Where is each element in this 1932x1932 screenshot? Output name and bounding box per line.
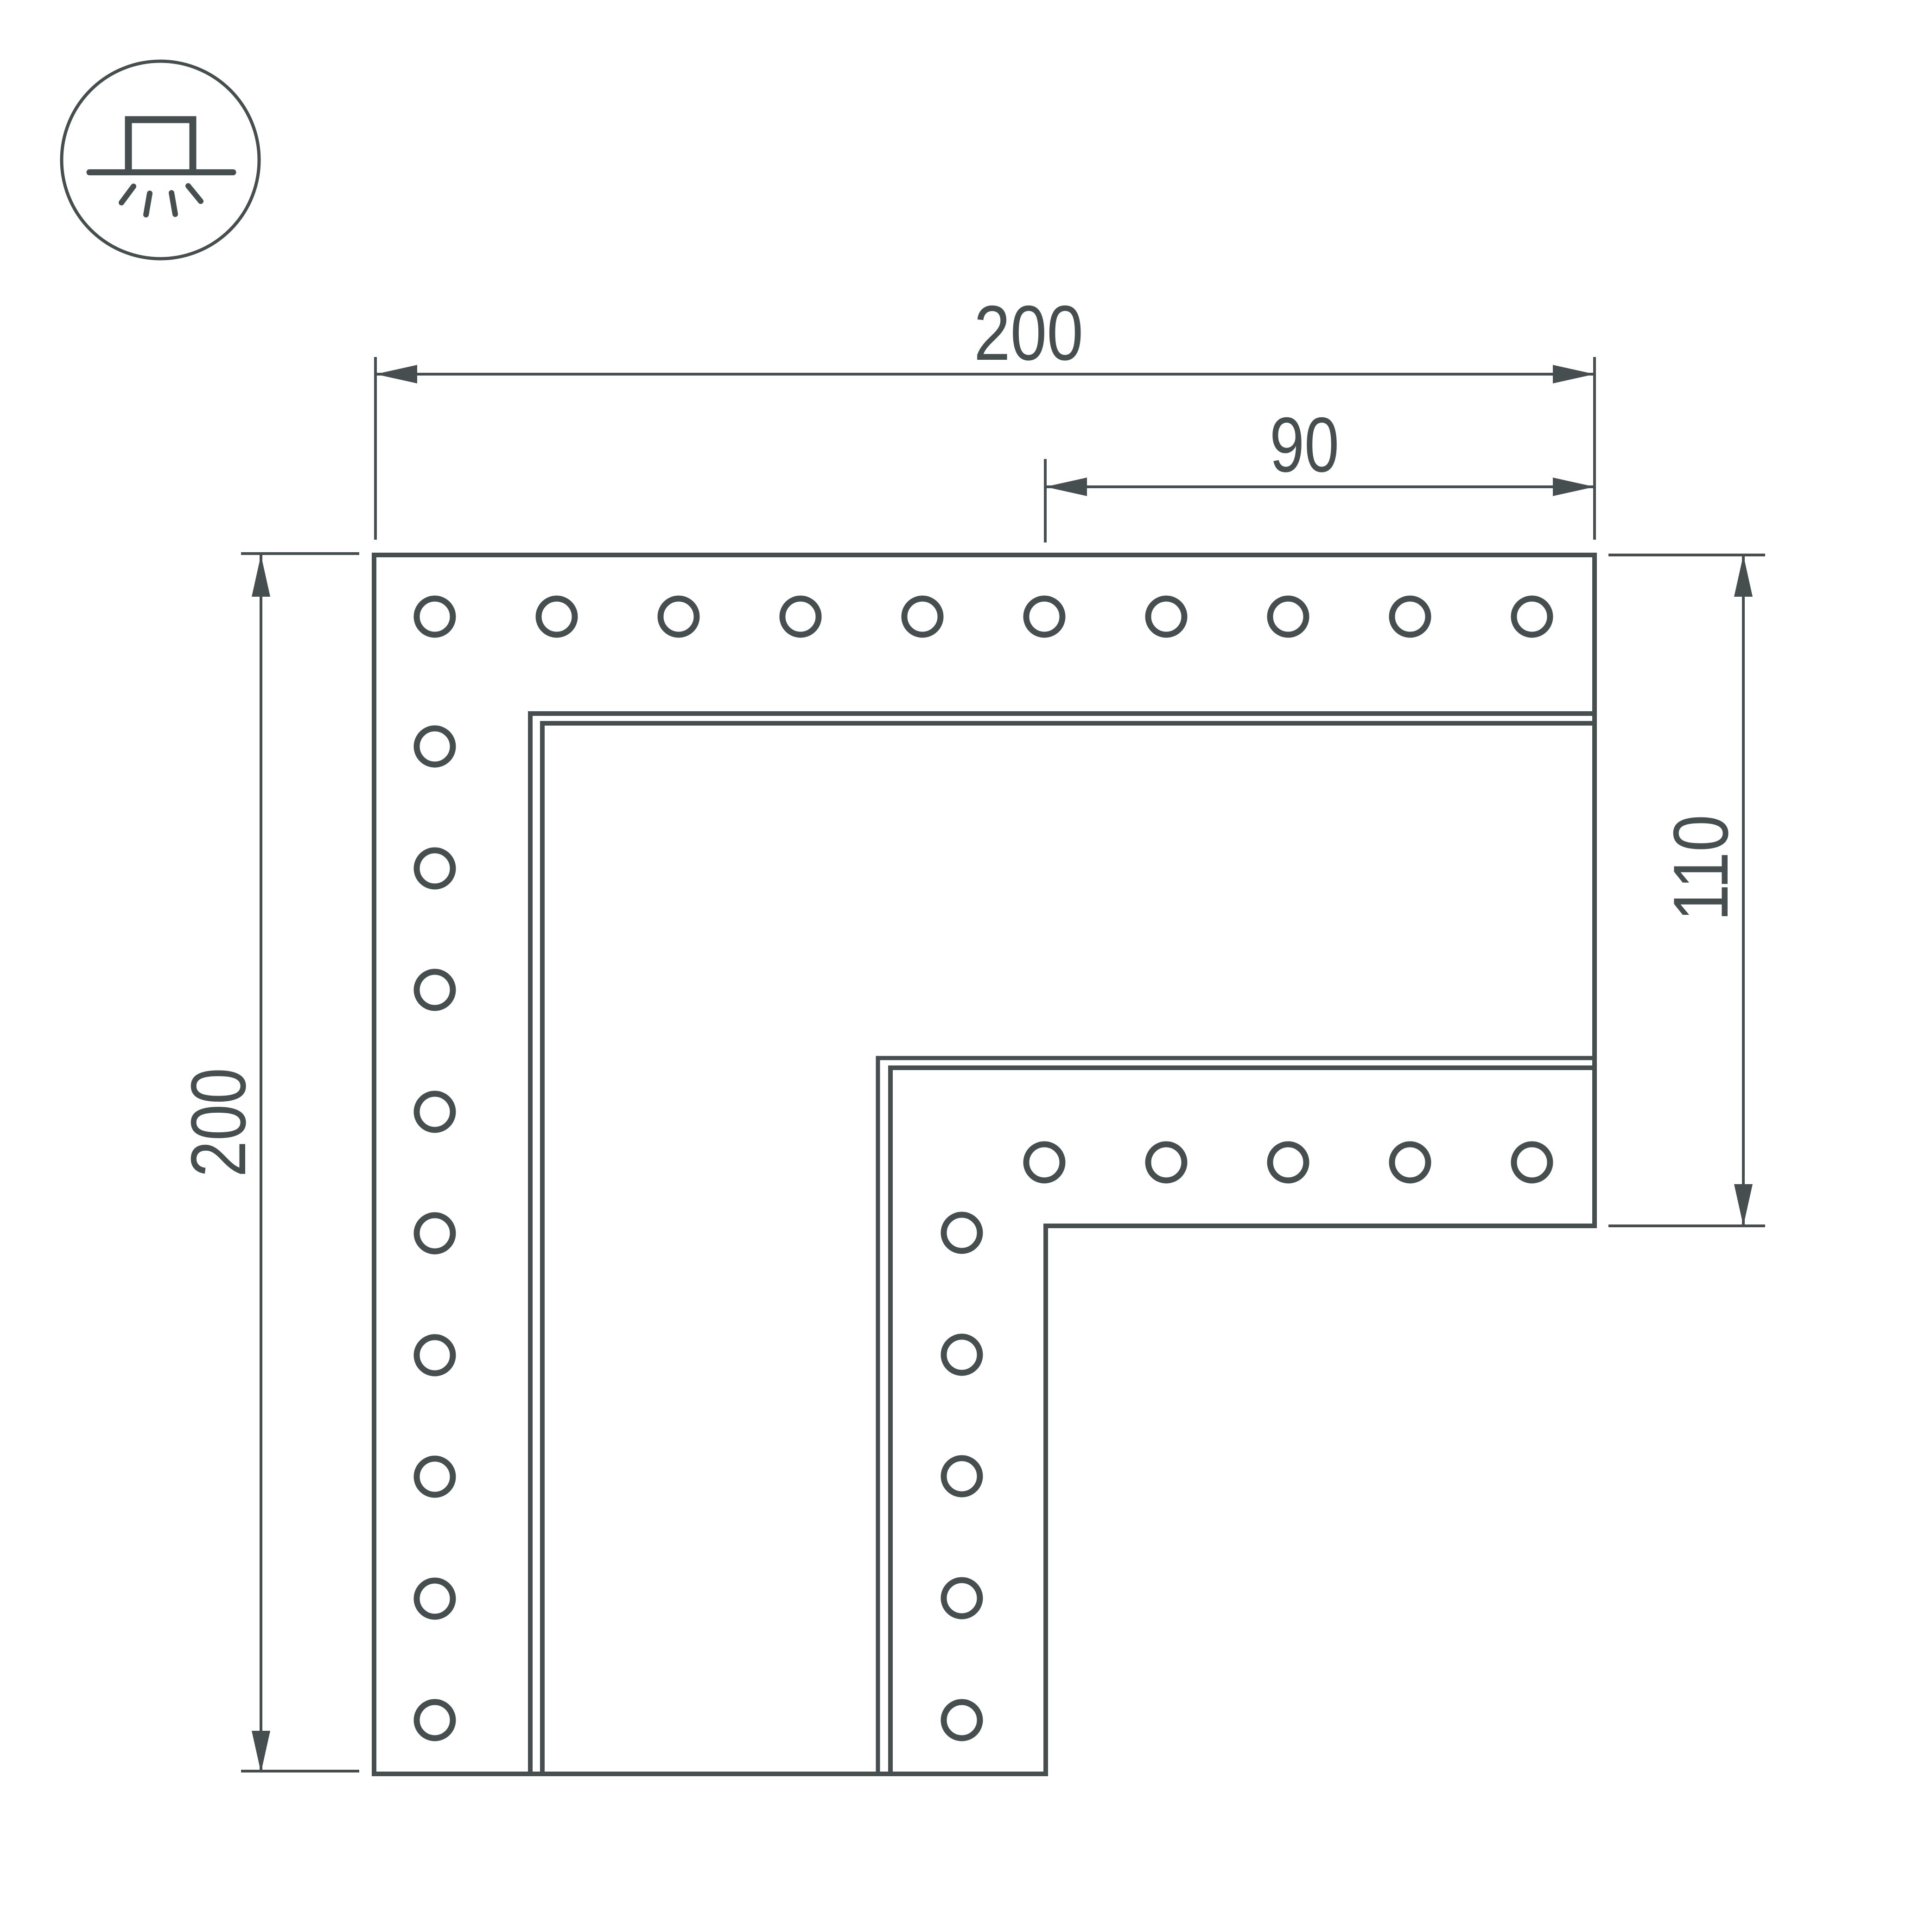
svg-text:90: 90 xyxy=(1270,401,1339,488)
svg-text:110: 110 xyxy=(1657,815,1744,921)
svg-text:200: 200 xyxy=(974,289,1083,376)
svg-text:200: 200 xyxy=(175,1068,262,1177)
